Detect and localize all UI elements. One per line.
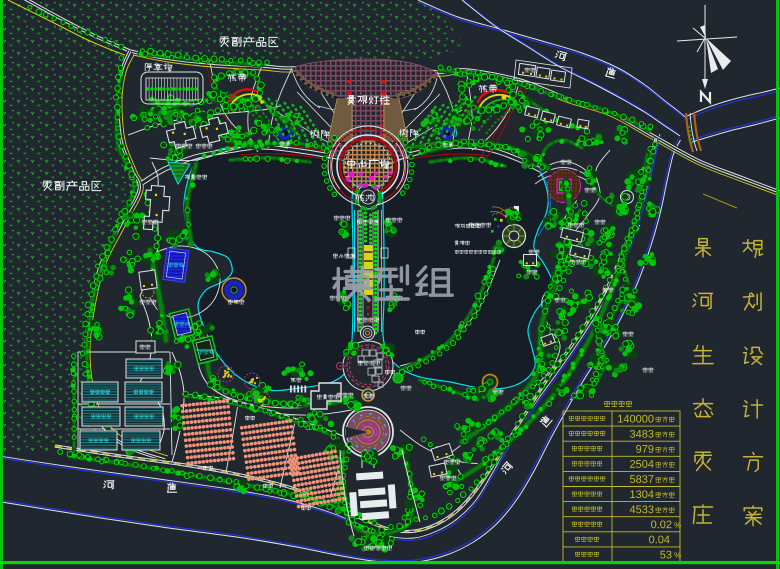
svg-text:3483: 3483 (630, 429, 654, 441)
svg-text:140000: 140000 (617, 413, 654, 425)
svg-text:0.04: 0.04 (649, 534, 670, 546)
svg-text:5837: 5837 (630, 474, 654, 486)
svg-text:1304: 1304 (630, 489, 654, 501)
svg-text:0.02: 0.02 (651, 519, 672, 531)
svg-text:2504: 2504 (630, 459, 654, 471)
svg-text:53: 53 (660, 549, 672, 561)
svg-text:%: % (674, 551, 681, 560)
svg-text:%: % (674, 521, 681, 530)
svg-text:979: 979 (636, 444, 654, 456)
svg-text:4533: 4533 (630, 504, 654, 516)
